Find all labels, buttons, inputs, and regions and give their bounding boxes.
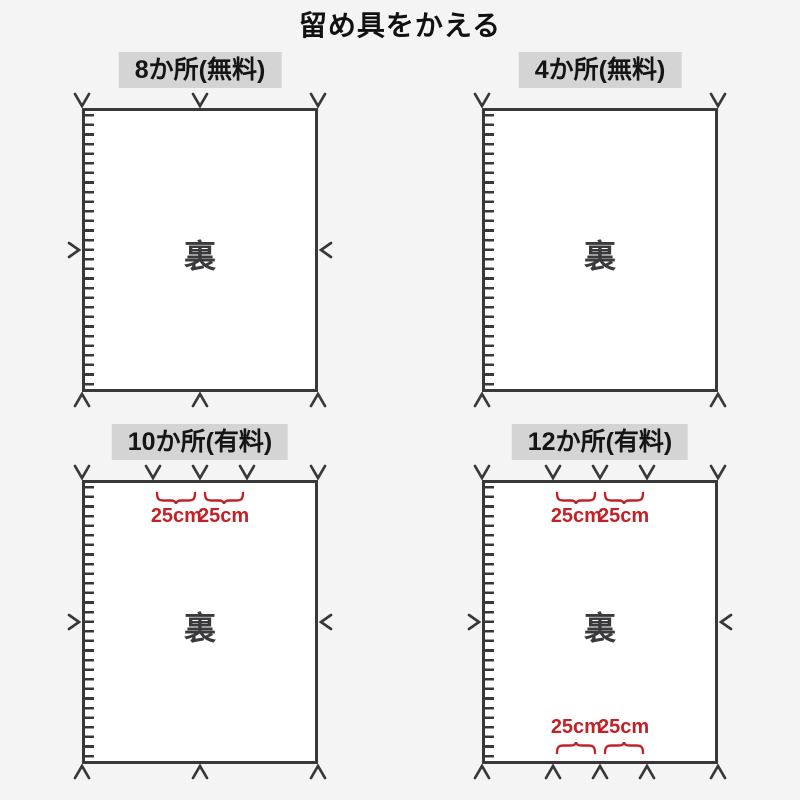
fastener-chevron-bottom-icon [190,764,210,780]
fastener-chevron-bottom-icon [308,392,328,408]
fastener-chevron-top-icon [190,92,210,108]
fastener-chevron-right-icon [318,240,334,260]
fastener-chevron-top-icon [590,464,610,480]
panel-4-places-free: 4か所(無料)裏 [400,45,800,428]
spacing-brace-bottom [603,742,645,755]
fastener-chevron-top-icon [708,464,728,480]
spacing-label-top: 25cm [589,505,659,528]
fabric-rect: 裏 25cm 25cm 25cm 25cm [482,480,718,764]
fastener-chevron-bottom-icon [472,764,492,780]
fastener-chevron-top-icon [543,464,563,480]
fastener-chevron-top-icon [708,92,728,108]
back-side-label: 裏 [85,231,315,277]
fastener-chevron-bottom-icon [472,392,492,408]
panel-10-places-paid: 10か所(有料)裏 25cm 25cm [0,417,400,800]
fastener-chevron-bottom-icon [72,392,92,408]
fastener-chevron-bottom-icon [308,764,328,780]
fastener-chevron-left-icon [66,612,82,632]
spacing-label-bottom: 25cm [589,716,659,739]
spacing-brace-top [203,491,245,504]
fabric-rect: 裏 25cm 25cm [82,480,318,764]
panel-label-4-places-free: 4か所(無料) [519,52,682,88]
fastener-chevron-bottom-icon [708,392,728,408]
panel-8-places-free: 8か所(無料)裏 [0,45,400,428]
fastener-chevron-right-icon [718,612,734,632]
fastener-chevron-top-icon [72,92,92,108]
spacing-brace-top [555,491,597,504]
fastener-chevron-top-icon [72,464,92,480]
fabric-rect: 裏 [82,108,318,392]
fastener-chevron-bottom-icon [590,764,610,780]
fastener-chevron-bottom-icon [708,764,728,780]
back-side-label: 裏 [485,603,715,649]
fastener-chevron-bottom-icon [543,764,563,780]
fastener-chevron-top-icon [637,464,657,480]
page-title: 留め具をかえる [0,4,800,44]
spacing-brace-top [155,491,197,504]
fastener-chevron-top-icon [190,464,210,480]
fastener-chevron-left-icon [66,240,82,260]
fastener-chevron-bottom-icon [637,764,657,780]
fabric-rect: 裏 [482,108,718,392]
spacing-brace-top [603,491,645,504]
back-side-label: 裏 [485,231,715,277]
fastener-chevron-top-icon [472,464,492,480]
fastener-chevron-top-icon [308,464,328,480]
panel-label-10-places-paid: 10か所(有料) [112,424,288,460]
panel-12-places-paid: 12か所(有料)裏 25cm 25cm 25cm 25cm [400,417,800,800]
back-side-label: 裏 [85,603,315,649]
spacing-label-top: 25cm [189,505,259,528]
fastener-chevron-top-icon [472,92,492,108]
panel-label-12-places-paid: 12か所(有料) [512,424,688,460]
fastener-chevron-bottom-icon [72,764,92,780]
panel-label-8-places-free: 8か所(無料) [119,52,282,88]
fastener-chevron-top-icon [308,92,328,108]
spacing-brace-bottom [555,742,597,755]
fastener-chevron-top-icon [143,464,163,480]
fastener-chevron-bottom-icon [190,392,210,408]
fastener-chevron-right-icon [318,612,334,632]
fastener-chevron-left-icon [466,612,482,632]
fastener-chevron-top-icon [237,464,257,480]
